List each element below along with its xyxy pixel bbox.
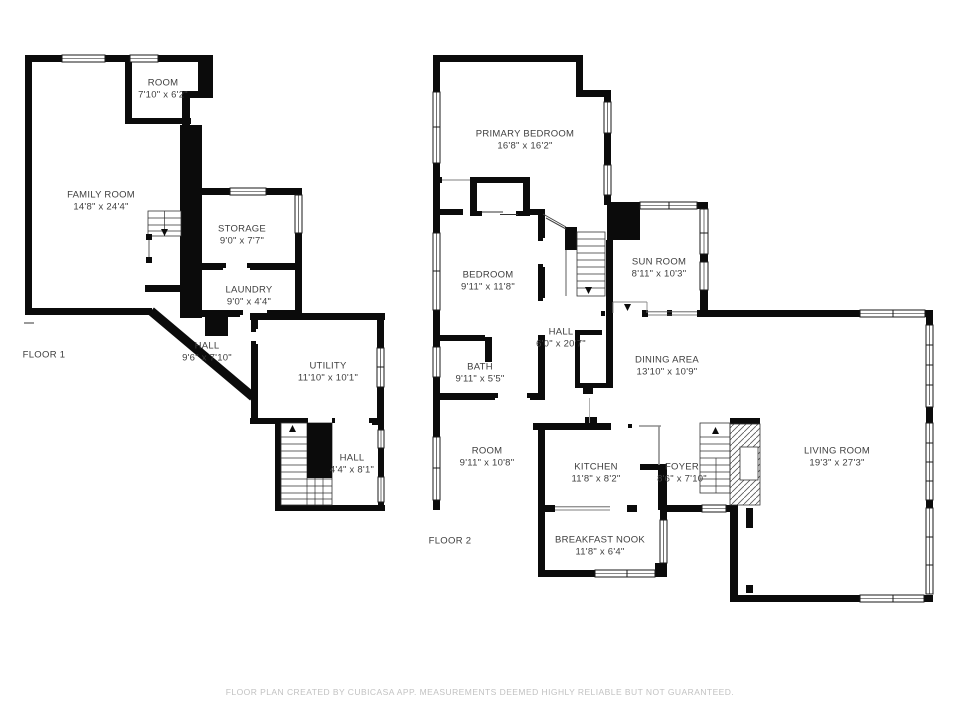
- room-dims: 13'10" x 10'9": [635, 366, 699, 378]
- room-name: BREAKFAST NOOK: [555, 535, 645, 547]
- room-label-family-room: FAMILY ROOM 14'8" x 24'4": [67, 190, 135, 213]
- room-label-bath: BATH 9'11" x 5'5": [455, 362, 504, 385]
- room-dims: 9'6" x 7'10": [182, 352, 232, 364]
- room-label-hall-lower-f1: HALL 4'4" x 8'1": [330, 453, 374, 476]
- room-dims: 9'0" x 4'4": [226, 296, 273, 308]
- room-name: ROOM: [460, 446, 515, 458]
- room-dims: 8'6" x 7'10": [657, 473, 707, 485]
- room-label-foyer: FOYER 8'6" x 7'10": [657, 462, 707, 485]
- room-name: KITCHEN: [571, 462, 620, 474]
- room-dims: 9'11" x 5'5": [455, 373, 504, 385]
- room-dims: 14'8" x 24'4": [67, 201, 135, 213]
- room-label-room-f1: ROOM 7'10" x 6'2": [138, 78, 188, 101]
- room-label-living-room: LIVING ROOM 19'3" x 27'3": [804, 446, 870, 469]
- footer-disclaimer: FLOOR PLAN CREATED BY CUBICASA APP. MEAS…: [226, 687, 734, 697]
- room-name: SUN ROOM: [632, 257, 687, 269]
- room-label-storage: STORAGE 9'0" x 7'7": [218, 224, 266, 247]
- room-label-breakfast-nook: BREAKFAST NOOK 11'8" x 6'4": [555, 535, 645, 558]
- room-dims: 19'3" x 27'3": [804, 457, 870, 469]
- room-label-dining-area: DINING AREA 13'10" x 10'9": [635, 355, 699, 378]
- room-name: HALL: [182, 341, 232, 353]
- floor1-label: FLOOR 1: [23, 350, 66, 361]
- room-label-utility: UTILITY 11'10" x 10'1": [298, 361, 358, 384]
- floor1-upper-stairs: [146, 211, 181, 263]
- room-dims: 9'11" x 10'8": [460, 457, 515, 469]
- room-name: UTILITY: [298, 361, 358, 373]
- room-dims: 9'11" x 11'8": [461, 281, 515, 293]
- floor2-label: FLOOR 2: [429, 536, 472, 547]
- room-name: PRIMARY BEDROOM: [476, 129, 574, 141]
- room-dims: 4'4" x 8'1": [330, 464, 374, 476]
- room-dims: 11'8" x 8'2": [571, 473, 620, 485]
- room-label-room-f2: ROOM 9'11" x 10'8": [460, 446, 515, 469]
- floor2-windows: [433, 92, 933, 602]
- room-name: BEDROOM: [461, 270, 515, 282]
- room-dims: 8'11" x 10'3": [632, 268, 687, 280]
- room-label-laundry: LAUNDRY 9'0" x 4'4": [226, 285, 273, 308]
- room-name: LIVING ROOM: [804, 446, 870, 458]
- room-label-primary-bedroom: PRIMARY BEDROOM 16'8" x 16'2": [476, 129, 574, 152]
- room-dims: 16'8" x 16'2": [476, 140, 574, 152]
- room-label-kitchen: KITCHEN 11'8" x 8'2": [571, 462, 620, 485]
- fireplace: [730, 424, 760, 505]
- room-dims: 6'0" x 20'7": [536, 338, 586, 350]
- room-label-hall-f2: HALL 6'0" x 20'7": [536, 327, 586, 350]
- room-name: BATH: [455, 362, 504, 374]
- scale-mark: [24, 322, 34, 324]
- room-name: DINING AREA: [635, 355, 699, 367]
- room-name: STORAGE: [218, 224, 266, 236]
- room-name: FOYER: [657, 462, 707, 474]
- room-label-hall-upper-f1: HALL 9'6" x 7'10": [182, 341, 232, 364]
- room-dims: 11'8" x 6'4": [555, 546, 645, 558]
- room-name: ROOM: [138, 78, 188, 90]
- room-label-bedroom: BEDROOM 9'11" x 11'8": [461, 270, 515, 293]
- room-name: FAMILY ROOM: [67, 190, 135, 202]
- room-dims: 11'10" x 10'1": [298, 372, 358, 384]
- room-label-sun-room: SUN ROOM 8'11" x 10'3": [632, 257, 687, 280]
- room-name: HALL: [536, 327, 586, 339]
- room-dims: 9'0" x 7'7": [218, 235, 266, 247]
- floor1-lower-stairs: [281, 423, 332, 505]
- room-name: LAUNDRY: [226, 285, 273, 297]
- floor-plan-drawing: [0, 0, 960, 720]
- room-dims: 7'10" x 6'2": [138, 89, 188, 101]
- floor1-windows: [62, 55, 384, 502]
- floor-plan-page: ROOM 7'10" x 6'2" FAMILY ROOM 14'8" x 24…: [0, 0, 960, 720]
- room-name: HALL: [330, 453, 374, 465]
